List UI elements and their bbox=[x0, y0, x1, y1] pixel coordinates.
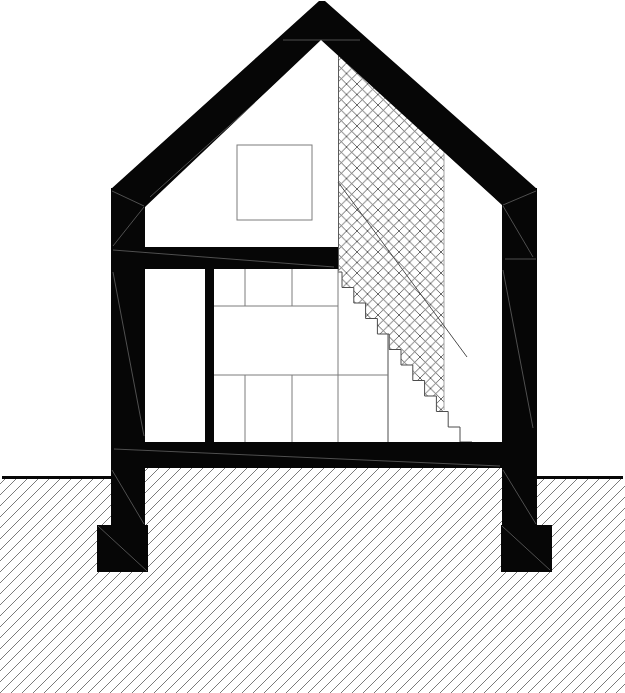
section-drawing-canvas bbox=[0, 0, 625, 693]
ground-floor-slab bbox=[111, 442, 537, 468]
roof-left-seam bbox=[150, 47, 317, 197]
left-wall bbox=[111, 188, 145, 525]
ground-line-left bbox=[2, 476, 111, 479]
architectural-section-drawing bbox=[0, 0, 625, 693]
window-square bbox=[237, 145, 312, 220]
ground-line-right bbox=[537, 476, 623, 479]
interior-post bbox=[205, 269, 214, 442]
upper-floor-slab bbox=[111, 247, 338, 269]
gable-roof bbox=[111, 1, 537, 207]
